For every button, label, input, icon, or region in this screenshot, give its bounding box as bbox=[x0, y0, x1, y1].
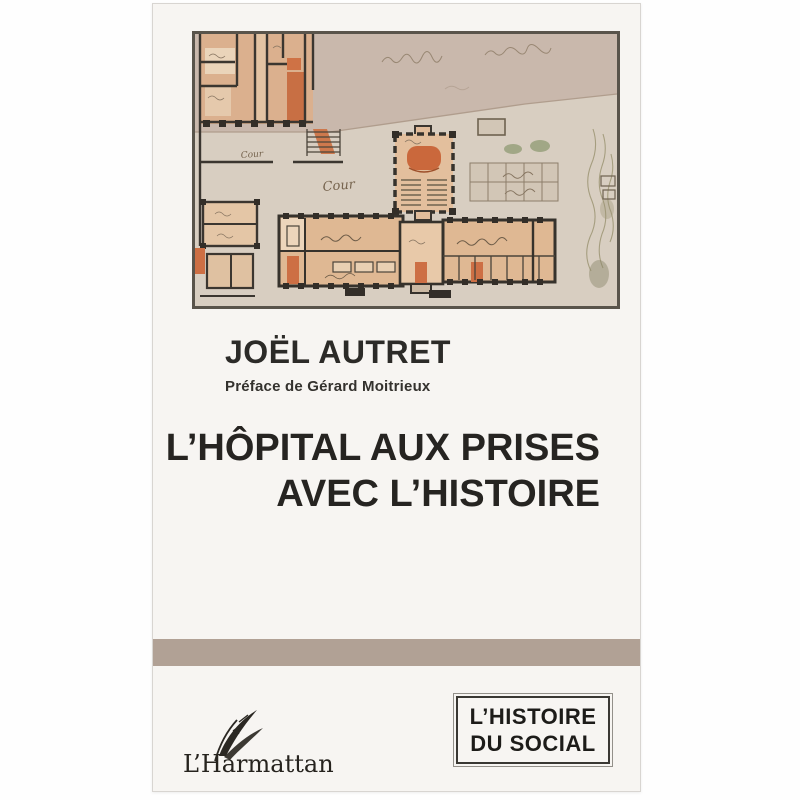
page-background: Cour Cour bbox=[0, 0, 800, 800]
collection-line-1: L’HISTOIRE bbox=[467, 703, 599, 730]
author-name: JOËL AUTRET bbox=[225, 334, 451, 370]
publisher-name: L’Harmattan bbox=[183, 750, 334, 778]
decorative-band bbox=[153, 639, 640, 666]
harmattan-logo: L’Harmattan bbox=[179, 704, 369, 786]
plan-label-cour-small: Cour bbox=[241, 149, 265, 161]
plan-chapel bbox=[392, 126, 456, 220]
preface-credit: Préface de Gérard Moitrieux bbox=[225, 378, 451, 395]
publisher-logo: L’Harmattan bbox=[179, 704, 369, 786]
cover-plan-image: Cour Cour bbox=[192, 31, 620, 309]
collection-line-2: DU SOCIAL bbox=[467, 730, 599, 757]
floor-plan-drawing: Cour Cour bbox=[195, 34, 617, 306]
title-line-2: AVEC L’HISTOIRE bbox=[166, 471, 600, 517]
book-title: L’HÔPITAL AUX PRISES AVEC L’HISTOIRE bbox=[166, 425, 600, 517]
collection-badge: L’HISTOIRE DU SOCIAL bbox=[456, 696, 610, 764]
book-cover: Cour Cour bbox=[152, 3, 641, 792]
author-block: JOËL AUTRET Préface de Gérard Moitrieux bbox=[225, 334, 451, 395]
plan-label-cour-large: Cour bbox=[322, 177, 356, 195]
plan-topleft-building bbox=[200, 34, 313, 127]
title-line-1: L’HÔPITAL AUX PRISES bbox=[166, 425, 600, 471]
